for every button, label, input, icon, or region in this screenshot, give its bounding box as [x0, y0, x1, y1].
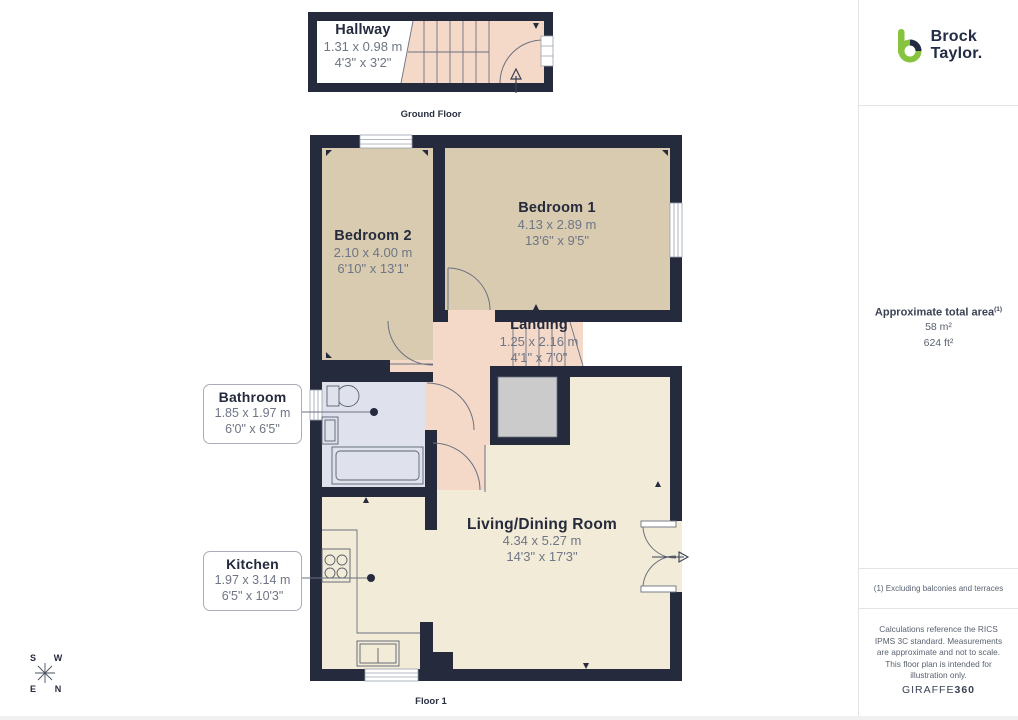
kitchen-window	[365, 669, 418, 681]
brand-name-line1: Brock	[931, 28, 983, 45]
floorplan-page: S W E N Hallway 1.31 x 0.98 m 4'3" x 3'2…	[0, 0, 1018, 720]
room-name: Landing	[500, 317, 579, 334]
room-name: Hallway	[324, 22, 403, 39]
room-dim-metric: 1.97 x 3.14 m	[204, 573, 301, 589]
room-dim-imperial: 13'6" x 9'5"	[518, 233, 597, 249]
hallway-label: Hallway 1.31 x 0.98 m 4'3" x 3'2"	[324, 22, 403, 71]
compass-west-label: W	[54, 653, 63, 663]
kitchen-area-fill	[322, 497, 425, 669]
room-name: Bedroom 1	[518, 200, 597, 217]
brand-logo: Brock Taylor.	[859, 27, 1018, 63]
room-dim-metric: 1.85 x 1.97 m	[204, 406, 301, 422]
total-area-metric: 58 m²	[859, 319, 1018, 335]
balconies-footnote: (1) Excluding balconies and terraces	[859, 584, 1018, 593]
stairwell-void	[583, 322, 682, 366]
room-dim-imperial: 4'1" x 7'0"	[500, 350, 579, 366]
landing-label: Landing 1.25 x 2.16 m 4'1" x 7'0"	[500, 317, 579, 366]
kitchen-callout: Kitchen 1.97 x 3.14 m 6'5" x 10'3"	[203, 551, 302, 611]
room-dim-imperial: 6'0" x 6'5"	[204, 422, 301, 438]
giraffe360-credit: GIRAFFE360	[859, 684, 1018, 696]
room-name: Kitchen	[204, 556, 301, 573]
room-dim-imperial: 6'5" x 10'3"	[204, 589, 301, 605]
bathroom-callout-dot	[370, 408, 378, 416]
sidebar: Brock Taylor. Approximate total area(1) …	[858, 0, 1018, 720]
compass-north-label: N	[55, 684, 62, 694]
living-dining-label: Living/Dining Room 4.34 x 5.27 m 14'3" x…	[467, 516, 617, 565]
divider	[859, 608, 1018, 609]
page-bottom-strip	[0, 716, 1018, 720]
total-area-imperial: 624 ft²	[859, 335, 1018, 351]
compass-east-label: E	[30, 684, 36, 694]
compass-south-label: S	[30, 653, 36, 663]
divider	[859, 568, 1018, 569]
room-dim-imperial: 4'3" x 3'2"	[324, 55, 403, 71]
room-name: Living/Dining Room	[467, 516, 617, 533]
total-area-block: Approximate total area(1) 58 m² 624 ft²	[859, 306, 1018, 351]
room-dim-metric: 1.31 x 0.98 m	[324, 39, 403, 55]
bedroom1-window	[670, 203, 682, 257]
total-area-footnote-ref: (1)	[994, 306, 1002, 313]
chimney-wall	[420, 622, 433, 669]
room-dim-imperial: 14'3" x 17'3"	[467, 549, 617, 565]
brand-name-line2: Taylor.	[931, 45, 983, 62]
compass-rose: S W E N	[30, 653, 63, 694]
credit-bold: 360	[954, 684, 975, 696]
bedroom2-label: Bedroom 2 2.10 x 4.00 m 6'10" x 13'1"	[334, 228, 413, 277]
ground-window	[541, 36, 553, 66]
credit-name: GIRAFFE	[902, 684, 955, 696]
room-name: Bedroom 2	[334, 228, 413, 245]
total-area-title-text: Approximate total area	[875, 307, 994, 319]
toilet-tank	[327, 386, 339, 406]
kitchen-callout-dot	[367, 574, 375, 582]
bedroom1-label: Bedroom 1 4.13 x 2.89 m 13'6" x 9'5"	[518, 200, 597, 249]
room-dim-metric: 4.13 x 2.89 m	[518, 217, 597, 233]
cupboard-fill	[498, 377, 557, 437]
floor1-label: Floor 1	[415, 696, 447, 707]
ground-floor-label: Ground Floor	[401, 109, 462, 120]
bathroom-window	[310, 390, 322, 420]
bathroom-callout: Bathroom 1.85 x 1.97 m 6'0" x 6'5"	[203, 384, 302, 444]
room-dim-imperial: 6'10" x 13'1"	[334, 261, 413, 277]
room-dim-metric: 2.10 x 4.00 m	[334, 245, 413, 261]
floor1-plan	[301, 135, 688, 681]
room-dim-metric: 4.34 x 5.27 m	[467, 533, 617, 549]
landing-corridor-fill	[437, 322, 490, 490]
bedroom2-window	[360, 135, 412, 148]
brand-logo-icon	[895, 27, 925, 63]
room-name: Bathroom	[204, 389, 301, 406]
room-dim-metric: 1.25 x 2.16 m	[500, 334, 579, 350]
disclaimer-text: Calculations reference the RICS IPMS 3C …	[870, 624, 1007, 682]
divider	[859, 105, 1018, 106]
total-area-title: Approximate total area(1)	[859, 306, 1018, 319]
